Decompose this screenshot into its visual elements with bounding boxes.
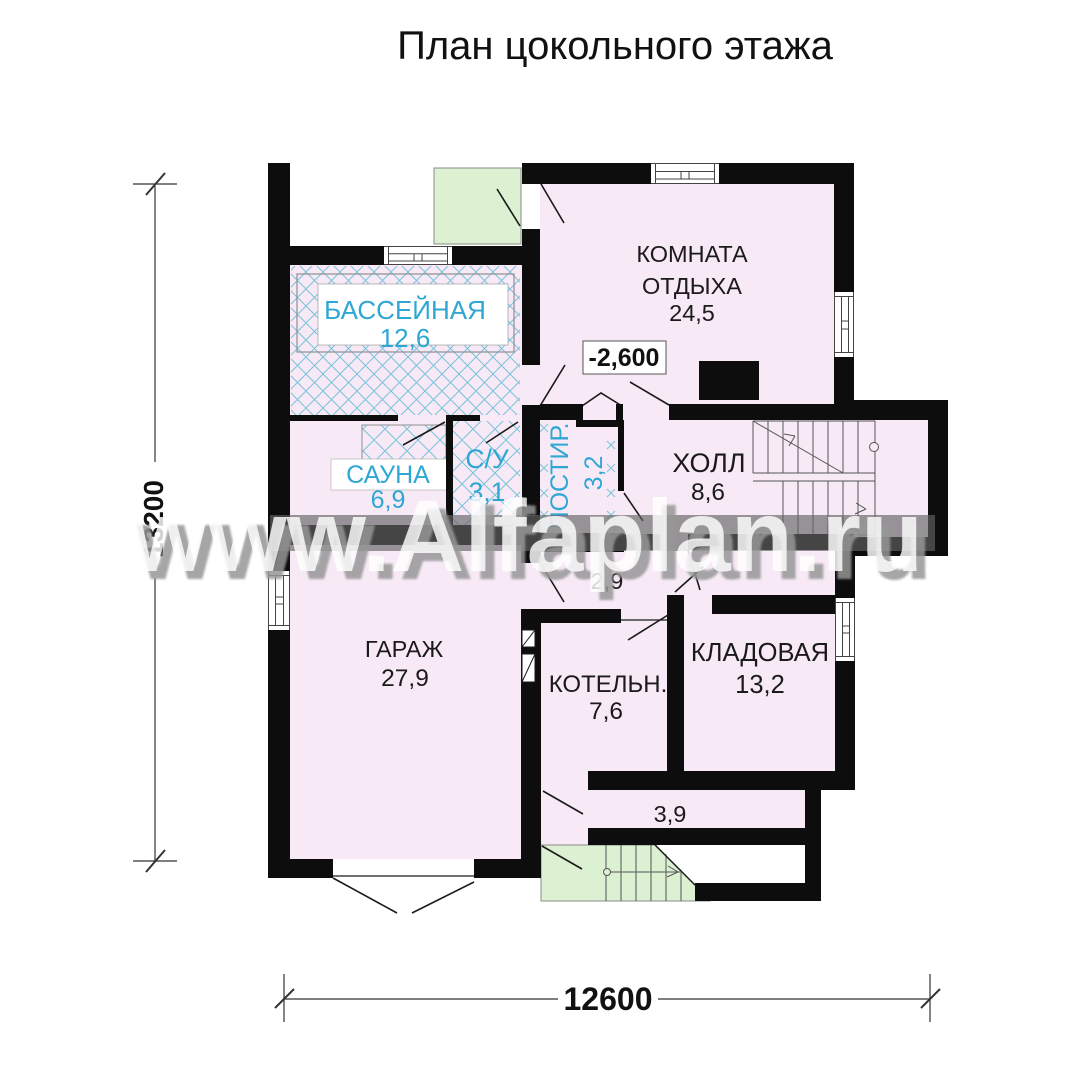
svg-text:27,9: 27,9	[381, 665, 429, 692]
svg-text:24,5: 24,5	[669, 300, 715, 326]
svg-text:ОТДЫХА: ОТДЫХА	[642, 273, 742, 299]
svg-text:12,6: 12,6	[380, 323, 431, 353]
svg-text:С/У: С/У	[465, 444, 509, 474]
svg-text:КОМНАТА: КОМНАТА	[636, 241, 748, 267]
svg-text:КОТЕЛЬН.: КОТЕЛЬН.	[549, 671, 668, 698]
svg-text:3,9: 3,9	[654, 801, 687, 827]
svg-text:-2,600: -2,600	[589, 344, 660, 372]
svg-text:План цокольного этажа: План цокольного этажа	[397, 24, 834, 68]
svg-text:7,6: 7,6	[589, 698, 623, 725]
svg-text:13,2: 13,2	[735, 671, 785, 699]
svg-text:БАССЕЙНАЯ: БАССЕЙНАЯ	[324, 295, 486, 325]
svg-text:12600: 12600	[564, 981, 653, 1017]
svg-text:ГАРАЖ: ГАРАЖ	[365, 636, 444, 662]
svg-text:ХОЛЛ: ХОЛЛ	[672, 448, 745, 478]
svg-text:КЛАДОВАЯ: КЛАДОВАЯ	[691, 639, 829, 667]
